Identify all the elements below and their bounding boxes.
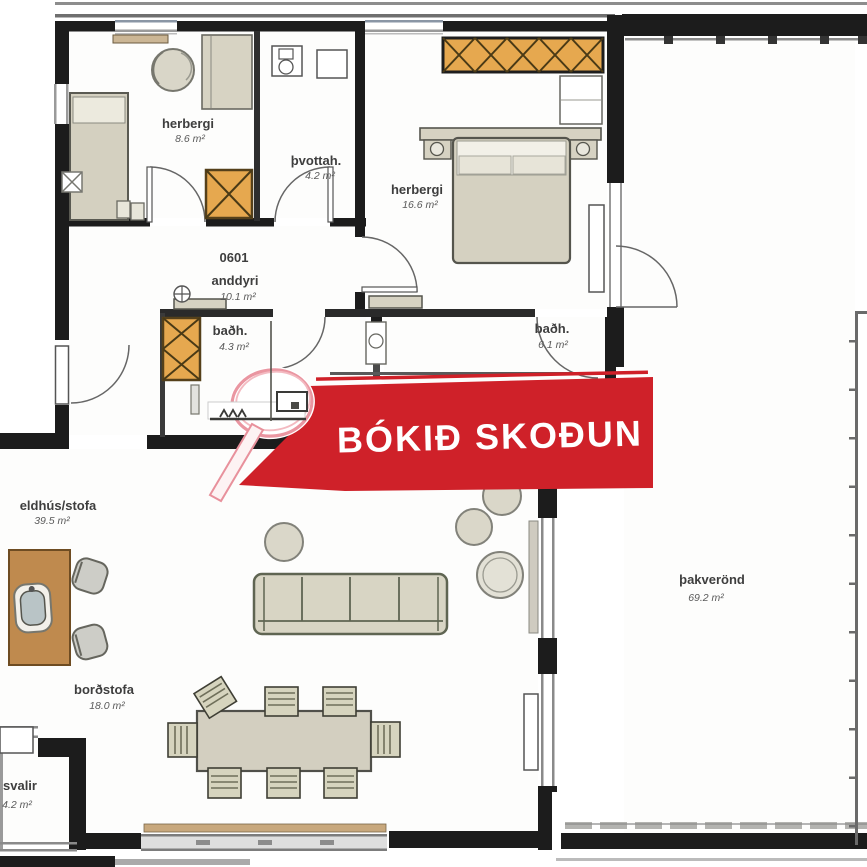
- svg-text:anddyri: anddyri: [212, 273, 259, 288]
- svg-text:herbergi: herbergi: [162, 116, 214, 131]
- svg-text:þvottah.: þvottah.: [291, 153, 342, 168]
- svg-text:baðh.: baðh.: [535, 321, 570, 336]
- svg-text:eldhús/stofa: eldhús/stofa: [20, 498, 97, 513]
- svg-text:8.6 m²: 8.6 m²: [175, 133, 205, 145]
- svg-text:10.1 m²: 10.1 m²: [220, 291, 256, 303]
- svg-text:6.1 m²: 6.1 m²: [538, 339, 568, 351]
- svg-text:4.3 m²: 4.3 m²: [219, 341, 249, 353]
- svg-text:16.6 m²: 16.6 m²: [402, 199, 438, 211]
- svg-text:0601: 0601: [220, 250, 249, 265]
- svg-text:4.2 m²: 4.2 m²: [2, 799, 32, 811]
- svg-text:svalir: svalir: [3, 778, 37, 793]
- svg-text:BÓKIÐ SKOÐUN: BÓKIÐ SKOÐUN: [336, 412, 643, 461]
- svg-text:4.2 m²: 4.2 m²: [305, 170, 335, 182]
- svg-text:18.0 m²: 18.0 m²: [89, 700, 125, 712]
- svg-text:baðh.: baðh.: [213, 323, 248, 338]
- svg-text:borðstofa: borðstofa: [74, 682, 135, 697]
- svg-text:herbergi: herbergi: [391, 182, 443, 197]
- svg-text:þakverönd: þakverönd: [679, 572, 745, 587]
- svg-text:39.5 m²: 39.5 m²: [34, 515, 70, 527]
- svg-text:69.2 m²: 69.2 m²: [688, 592, 724, 604]
